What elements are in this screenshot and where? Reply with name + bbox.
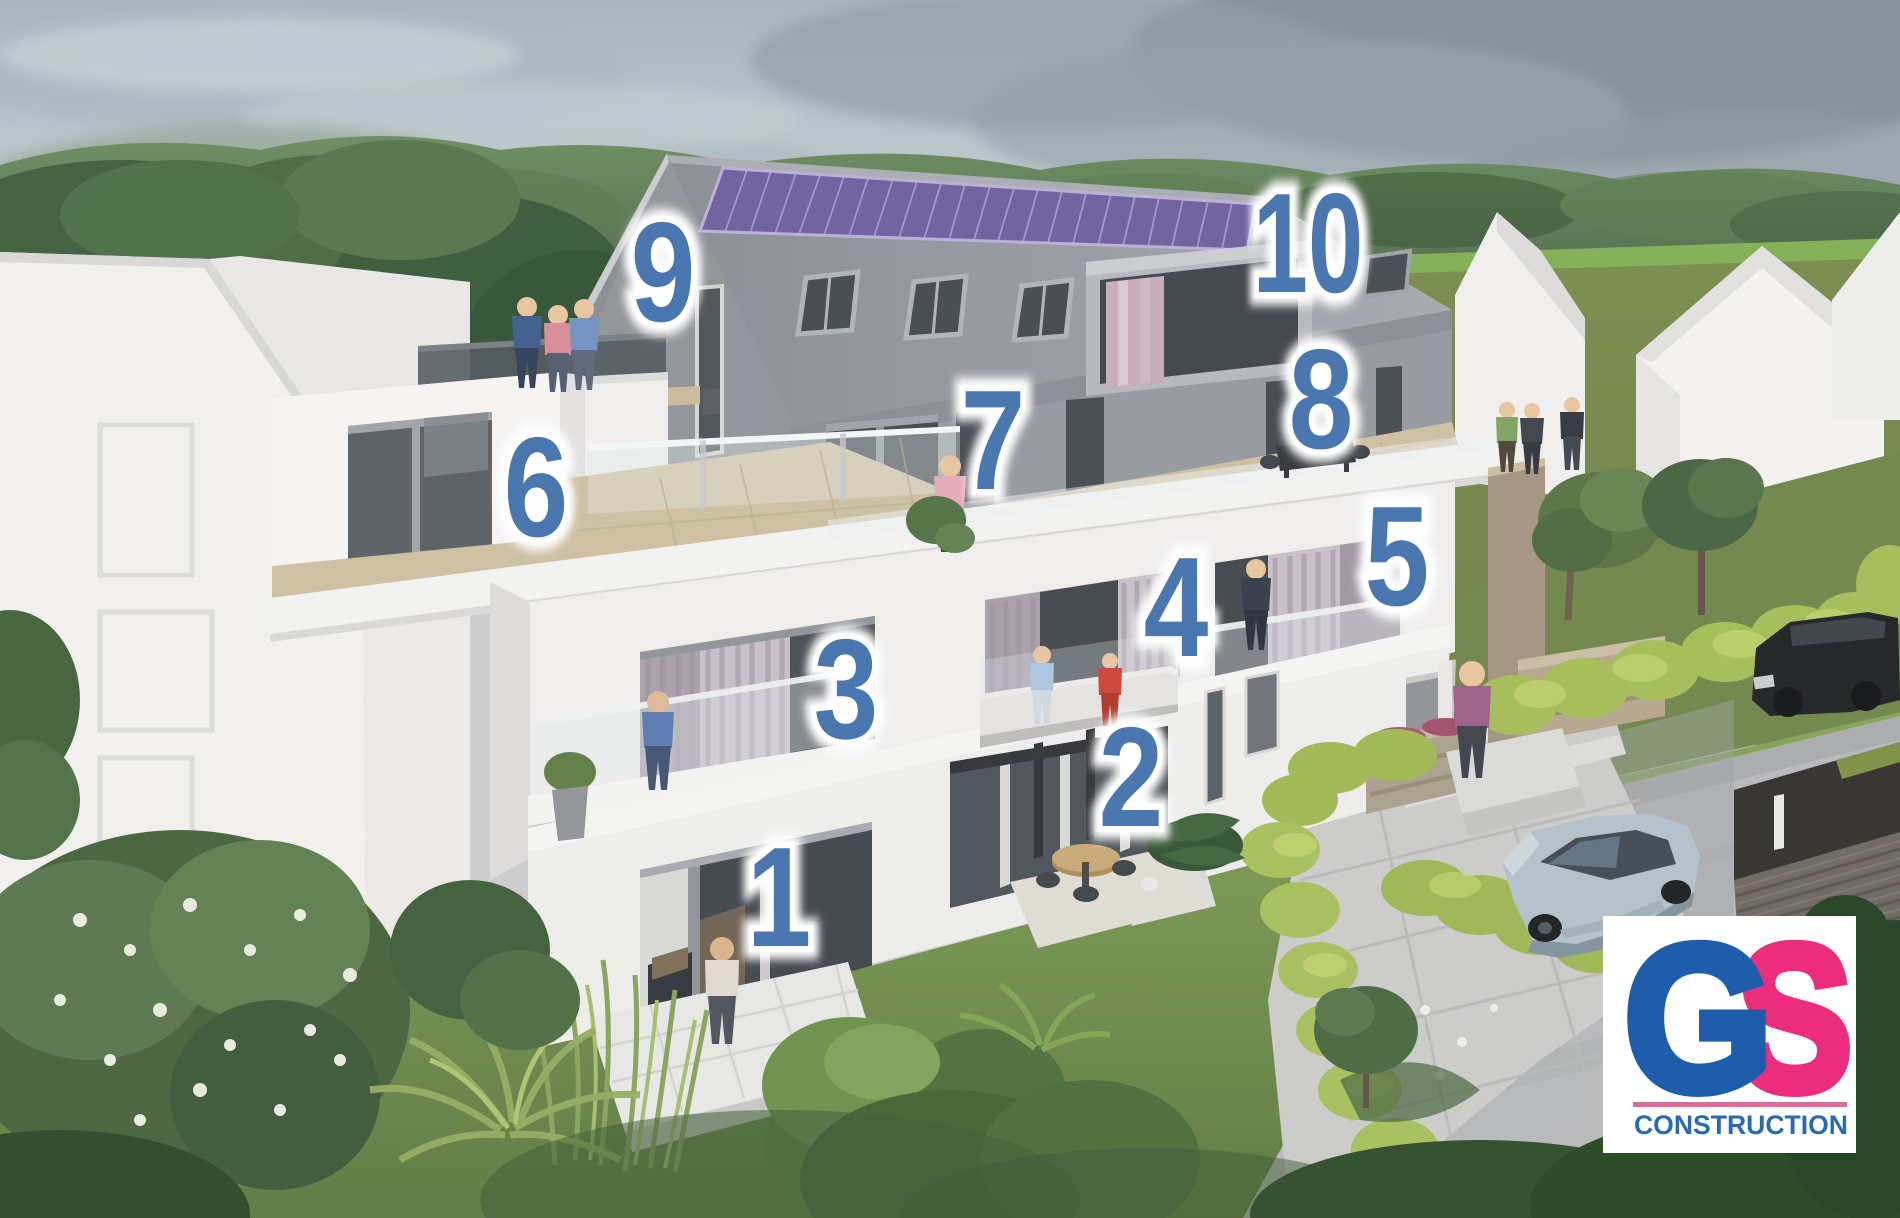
svg-text:8: 8 (1289, 319, 1354, 479)
svg-text:G: G (1624, 903, 1773, 1135)
svg-text:10: 10 (1253, 163, 1364, 322)
svg-text:5: 5 (1365, 476, 1430, 636)
svg-text:7: 7 (961, 360, 1026, 520)
svg-text:1: 1 (747, 817, 812, 977)
svg-text:9: 9 (631, 192, 696, 352)
svg-text:6: 6 (504, 407, 569, 567)
svg-text:CONSTRUCTION: CONSTRUCTION (1634, 1110, 1848, 1140)
svg-text:4: 4 (1144, 527, 1209, 687)
svg-text:3: 3 (814, 609, 879, 769)
svg-text:2: 2 (1099, 697, 1164, 857)
